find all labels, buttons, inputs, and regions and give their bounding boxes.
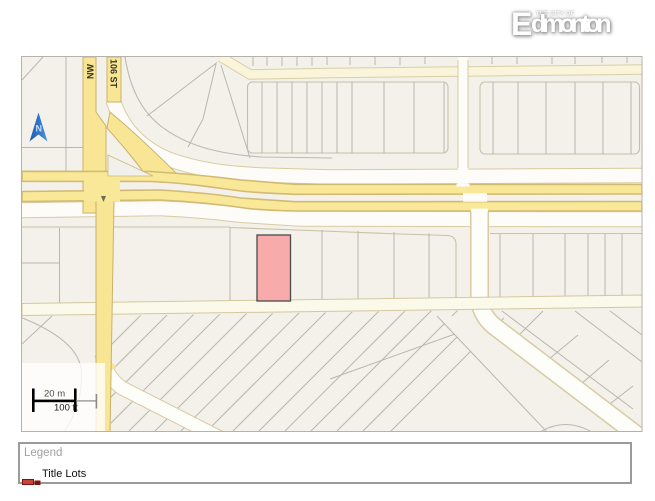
svg-text:20 m: 20 m bbox=[44, 389, 65, 400]
svg-text:100 ft: 100 ft bbox=[54, 403, 78, 414]
svg-text:106 ST: 106 ST bbox=[109, 59, 119, 89]
svg-text:NW: NW bbox=[86, 64, 96, 79]
svg-text:N: N bbox=[36, 124, 43, 134]
